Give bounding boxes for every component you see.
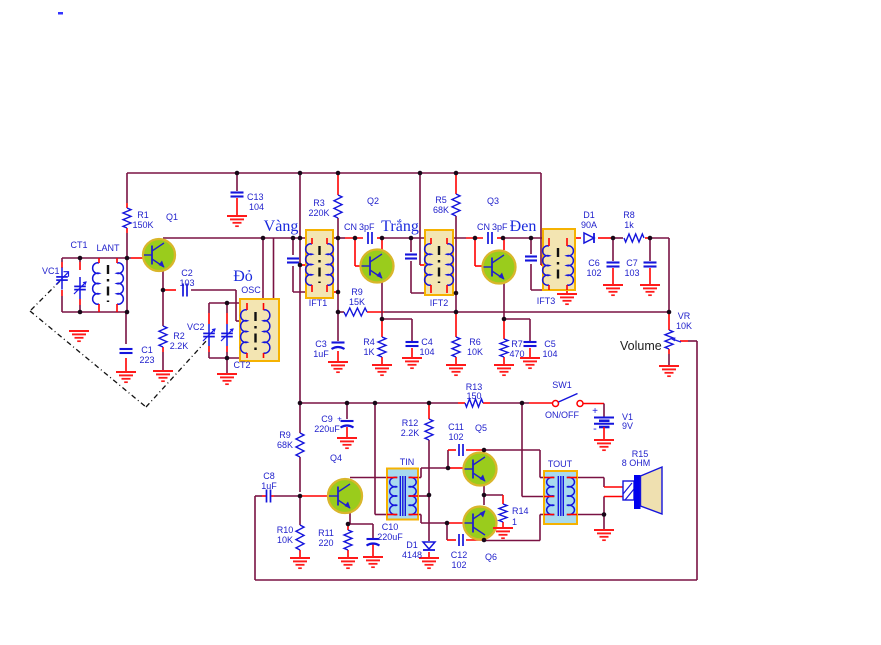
svg-text:1k: 1k — [624, 220, 634, 230]
svg-text:220uF: 220uF — [314, 424, 340, 434]
svg-text:C3: C3 — [315, 339, 327, 349]
svg-text:C5: C5 — [544, 339, 556, 349]
svg-text:103: 103 — [179, 278, 194, 288]
svg-text:220uF: 220uF — [377, 532, 403, 542]
svg-text:TOUT: TOUT — [548, 459, 573, 469]
svg-text:Q5: Q5 — [475, 423, 487, 433]
svg-text:1uF: 1uF — [261, 481, 277, 491]
svg-text:1K: 1K — [363, 347, 374, 357]
svg-text:R12: R12 — [402, 418, 419, 428]
svg-text:1uF: 1uF — [313, 349, 329, 359]
svg-text:+: + — [592, 406, 598, 417]
svg-text:VC1: VC1 — [42, 266, 60, 276]
svg-text:CT1: CT1 — [70, 240, 87, 250]
svg-text:R11: R11 — [318, 528, 334, 538]
svg-text:ON/OFF: ON/OFF — [545, 410, 579, 420]
svg-text:C1: C1 — [141, 345, 153, 355]
svg-text:IFT1: IFT1 — [309, 298, 328, 308]
svg-text:Q1: Q1 — [166, 212, 178, 222]
svg-text:D1: D1 — [406, 540, 418, 550]
svg-text:C4: C4 — [421, 337, 433, 347]
svg-text:R1: R1 — [137, 210, 149, 220]
svg-text:Q6: Q6 — [485, 552, 497, 562]
svg-text:Q2: Q2 — [367, 196, 379, 206]
svg-text:102: 102 — [586, 268, 601, 278]
svg-text:3pF: 3pF — [359, 222, 375, 232]
svg-text:Đỏ: Đỏ — [233, 268, 253, 285]
svg-text:C13: C13 — [247, 192, 264, 202]
svg-text:10K: 10K — [277, 535, 293, 545]
svg-text:CN: CN — [344, 222, 357, 232]
svg-text:Đen: Đen — [510, 218, 537, 235]
svg-text:Q4: Q4 — [330, 453, 342, 463]
svg-text:4148: 4148 — [402, 550, 422, 560]
svg-text:1: 1 — [512, 517, 517, 527]
svg-text:R9: R9 — [351, 287, 363, 297]
svg-text:R8: R8 — [623, 210, 635, 220]
svg-text:Volume: Volume — [620, 339, 662, 353]
svg-text:223: 223 — [139, 355, 154, 365]
svg-text:Vàng: Vàng — [264, 218, 299, 235]
svg-text:OSC: OSC — [241, 285, 261, 295]
svg-text:104: 104 — [419, 347, 434, 357]
svg-text:R6: R6 — [469, 337, 481, 347]
svg-text:2.2K: 2.2K — [170, 341, 189, 351]
svg-text:VR: VR — [678, 311, 691, 321]
svg-text:102: 102 — [451, 560, 466, 570]
svg-text:C11: C11 — [448, 422, 464, 432]
svg-text:IFT2: IFT2 — [430, 298, 449, 308]
svg-text:90A: 90A — [581, 220, 597, 230]
svg-text:R3: R3 — [313, 198, 325, 208]
svg-text:R4: R4 — [363, 337, 375, 347]
svg-text:15K: 15K — [349, 297, 365, 307]
svg-text:C8: C8 — [263, 471, 275, 481]
svg-text:+: + — [337, 415, 342, 424]
svg-text:8 OHM: 8 OHM — [622, 458, 651, 468]
svg-text:C12: C12 — [451, 550, 468, 560]
svg-text:R7: R7 — [511, 339, 523, 349]
svg-text:C2: C2 — [181, 268, 193, 278]
svg-text:2.2K: 2.2K — [401, 428, 420, 438]
svg-text:Trắng: Trắng — [381, 218, 419, 235]
svg-text:C10: C10 — [382, 522, 399, 532]
svg-text:D1: D1 — [583, 210, 595, 220]
svg-text:150K: 150K — [132, 220, 153, 230]
svg-text:IFT3: IFT3 — [537, 296, 556, 306]
svg-text:68K: 68K — [433, 205, 449, 215]
svg-text:9V: 9V — [622, 421, 633, 431]
svg-text:R14: R14 — [512, 506, 529, 516]
svg-text:R2: R2 — [173, 331, 185, 341]
svg-text:220: 220 — [318, 538, 333, 548]
svg-text:68K: 68K — [277, 440, 293, 450]
svg-text:R9: R9 — [279, 430, 291, 440]
svg-text:TIN: TIN — [400, 457, 415, 467]
svg-text:104: 104 — [249, 202, 264, 212]
svg-text:-: - — [593, 423, 597, 435]
svg-text:470: 470 — [509, 349, 524, 359]
svg-text:104: 104 — [542, 349, 557, 359]
svg-text:C6: C6 — [588, 258, 600, 268]
svg-text:10K: 10K — [676, 321, 692, 331]
svg-text:R10: R10 — [277, 525, 294, 535]
svg-text:C9: C9 — [321, 414, 333, 424]
svg-text:VC2: VC2 — [187, 322, 205, 332]
svg-text:Q3: Q3 — [487, 196, 499, 206]
svg-text:150: 150 — [466, 391, 481, 401]
svg-text:3pF: 3pF — [492, 222, 508, 232]
svg-text:CN: CN — [477, 222, 490, 232]
svg-text:LANT: LANT — [96, 243, 120, 253]
svg-text:103: 103 — [624, 268, 639, 278]
svg-text:220K: 220K — [308, 208, 329, 218]
svg-text:CT2: CT2 — [233, 360, 250, 370]
svg-text:R5: R5 — [435, 195, 447, 205]
svg-text:C7: C7 — [626, 258, 638, 268]
svg-text:SW1: SW1 — [552, 380, 572, 390]
svg-text:102: 102 — [448, 432, 463, 442]
svg-text:10K: 10K — [467, 347, 483, 357]
